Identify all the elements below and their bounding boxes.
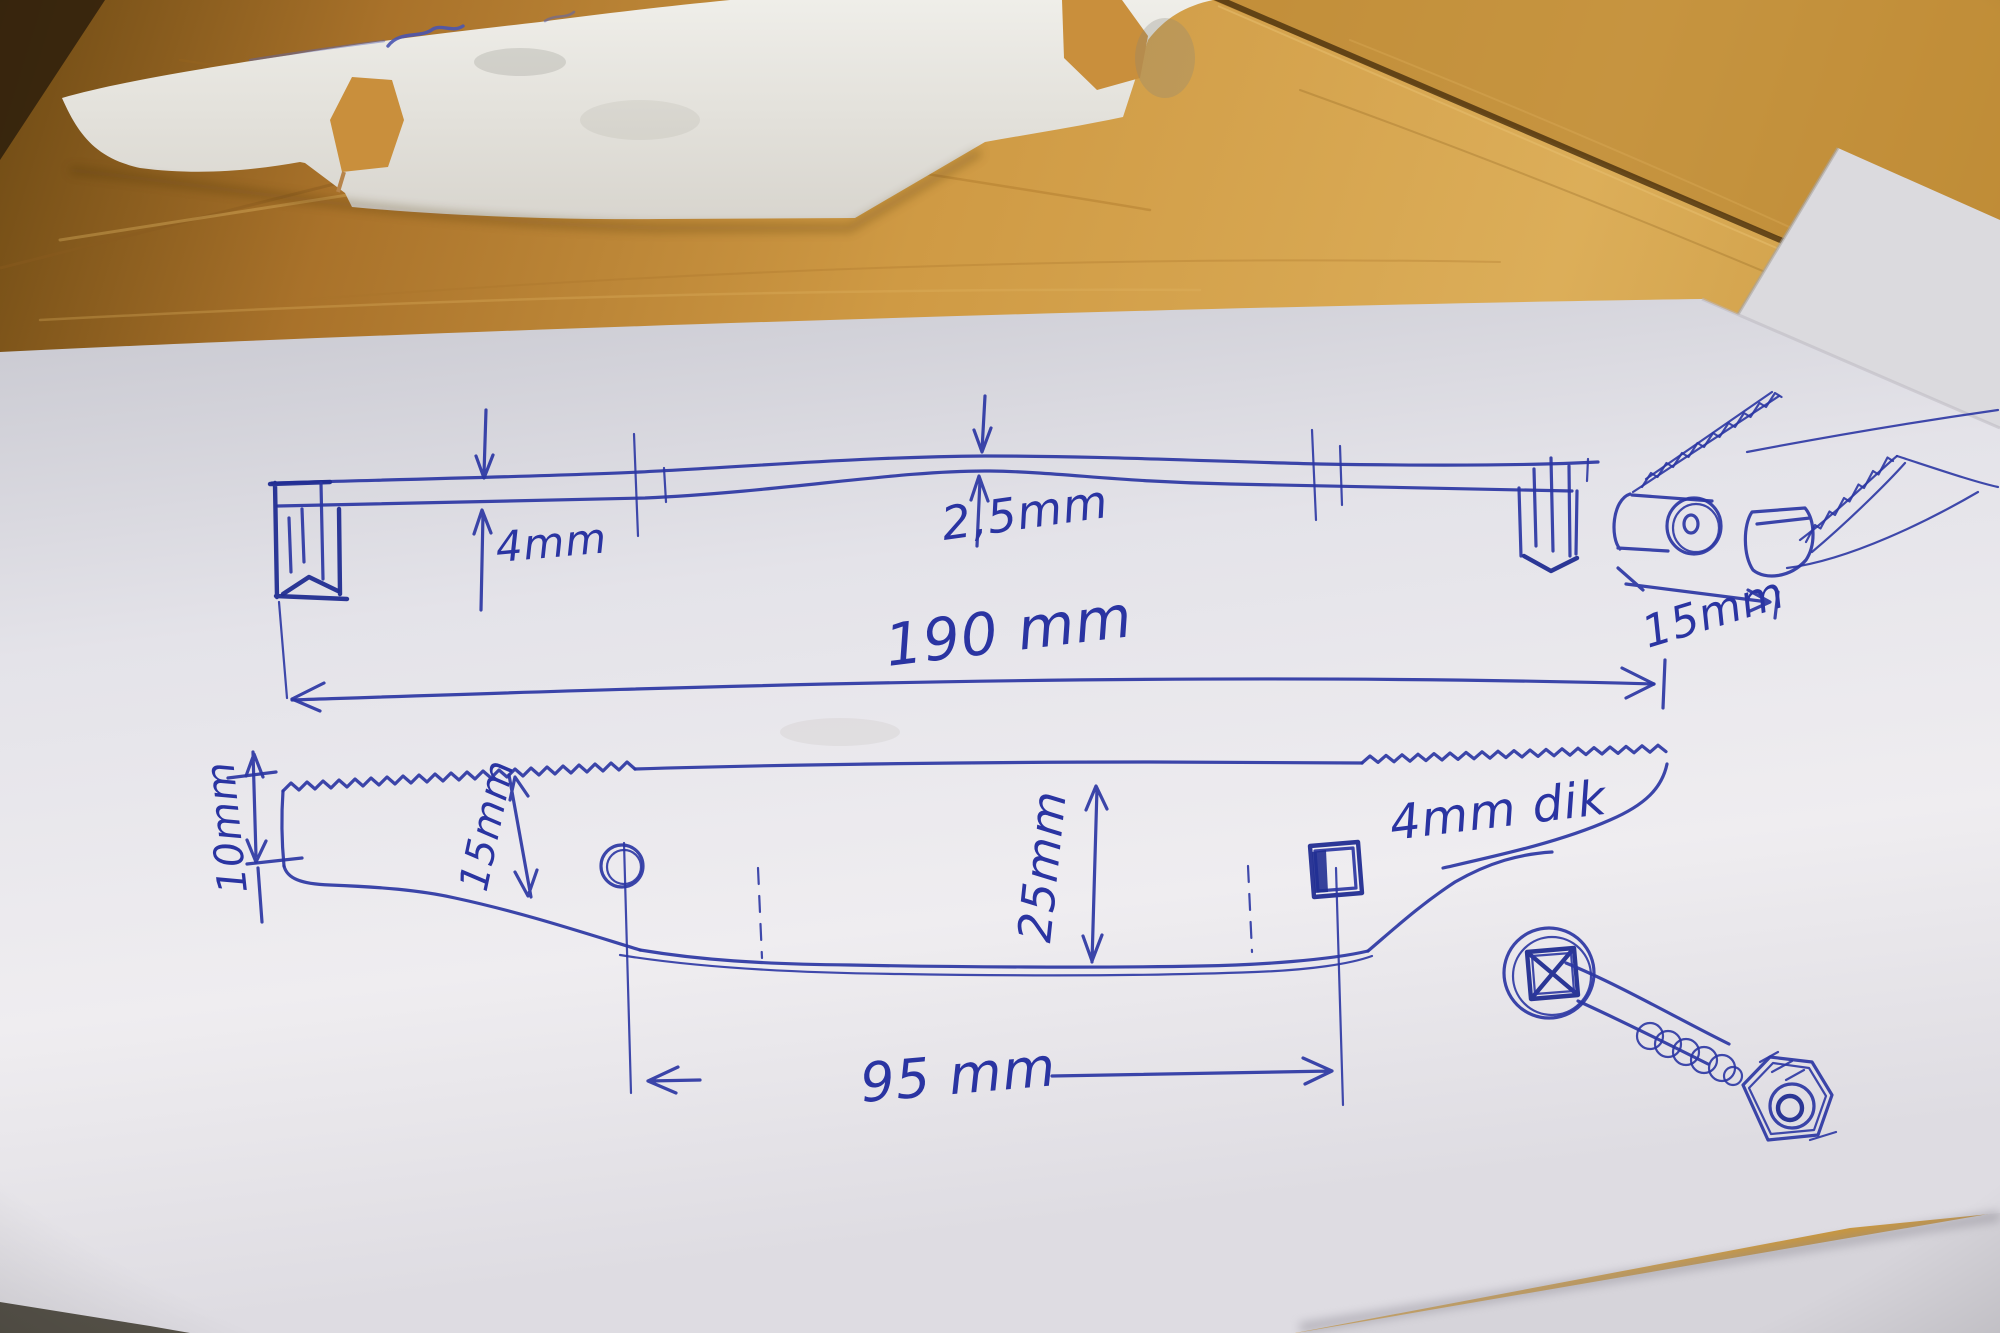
photo-vignette [0, 0, 2000, 1333]
sketch-photo-canvas: 4mm 2,5mm 15mm [0, 0, 2000, 1333]
photo-of-sketch: 4mm 2,5mm 15mm [0, 0, 2000, 1333]
